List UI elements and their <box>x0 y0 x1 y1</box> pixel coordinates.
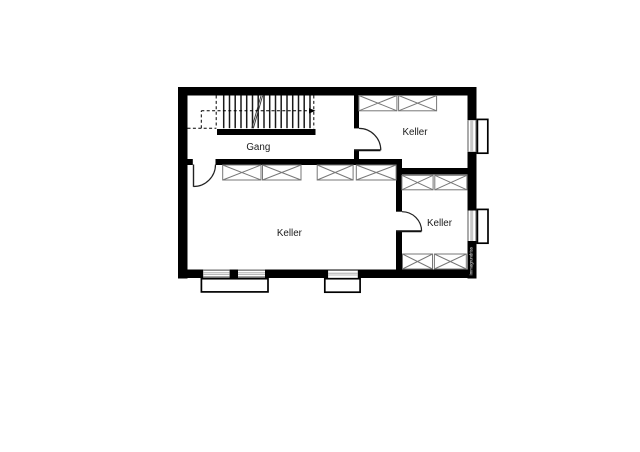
svg-text:Immogrundriss: Immogrundriss <box>469 247 474 275</box>
svg-text:Keller: Keller <box>427 218 453 229</box>
svg-text:Keller: Keller <box>402 127 428 138</box>
svg-text:Gang: Gang <box>246 142 270 153</box>
svg-text:Keller: Keller <box>277 228 303 239</box>
